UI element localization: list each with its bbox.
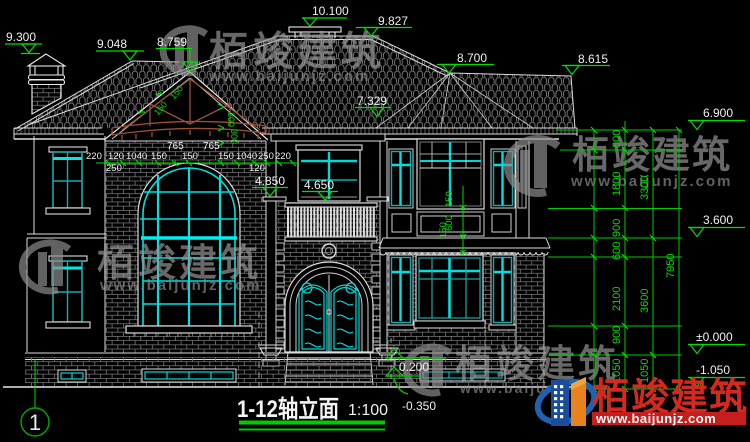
svg-text:6.900: 6.900 — [703, 106, 733, 120]
svg-text:1040: 1040 — [236, 151, 257, 162]
svg-text:250: 250 — [106, 163, 122, 174]
svg-text:2100: 2100 — [611, 287, 623, 311]
svg-text:4.850: 4.850 — [255, 174, 285, 188]
svg-text:3.600: 3.600 — [703, 213, 733, 227]
svg-text:200: 200 — [226, 112, 236, 127]
svg-text:600: 600 — [611, 130, 623, 148]
svg-text:栢竣建筑: 栢竣建筑 — [572, 135, 732, 177]
svg-text:8.700: 8.700 — [457, 51, 487, 65]
svg-text:9.048: 9.048 — [97, 37, 127, 51]
svg-text:1-12轴立面: 1-12轴立面 — [237, 395, 339, 423]
svg-text:900: 900 — [611, 326, 623, 344]
svg-text:4.650: 4.650 — [304, 178, 334, 192]
svg-text:900: 900 — [611, 219, 623, 237]
svg-text:1: 1 — [29, 410, 41, 435]
svg-text:10.100: 10.100 — [312, 4, 349, 18]
svg-text:150: 150 — [182, 151, 198, 162]
svg-text:7.329: 7.329 — [357, 94, 387, 108]
svg-text:www.baijunjz.com: www.baijunjz.com — [208, 68, 370, 85]
svg-text:150: 150 — [218, 151, 234, 162]
svg-text:220: 220 — [275, 151, 291, 162]
svg-text:www.baijunjz.com: www.baijunjz.com — [595, 411, 716, 426]
svg-text:1:100: 1:100 — [348, 402, 388, 419]
svg-text:120: 120 — [108, 151, 124, 162]
svg-text:600: 600 — [611, 242, 623, 260]
svg-text:-1.050: -1.050 — [696, 363, 730, 377]
svg-text:150: 150 — [151, 151, 167, 162]
svg-text:150: 150 — [444, 191, 455, 207]
svg-text:8.615: 8.615 — [578, 52, 608, 66]
svg-text:150: 150 — [438, 222, 449, 238]
svg-text:9.300: 9.300 — [6, 30, 36, 44]
svg-text:1800: 1800 — [611, 172, 623, 196]
svg-text:0.200: 0.200 — [399, 360, 429, 374]
svg-text:9.827: 9.827 — [378, 14, 408, 28]
svg-text:7950: 7950 — [665, 254, 677, 278]
svg-text:3300: 3300 — [639, 176, 651, 200]
svg-text:www.baijunjz.com: www.baijunjz.com — [99, 277, 261, 294]
svg-text:250: 250 — [258, 151, 274, 162]
svg-text:-0.350: -0.350 — [402, 399, 436, 413]
svg-text:3600: 3600 — [639, 289, 651, 313]
svg-text:±0.000: ±0.000 — [696, 330, 733, 344]
svg-text:220: 220 — [86, 151, 102, 162]
svg-text:8.759: 8.759 — [157, 35, 187, 49]
